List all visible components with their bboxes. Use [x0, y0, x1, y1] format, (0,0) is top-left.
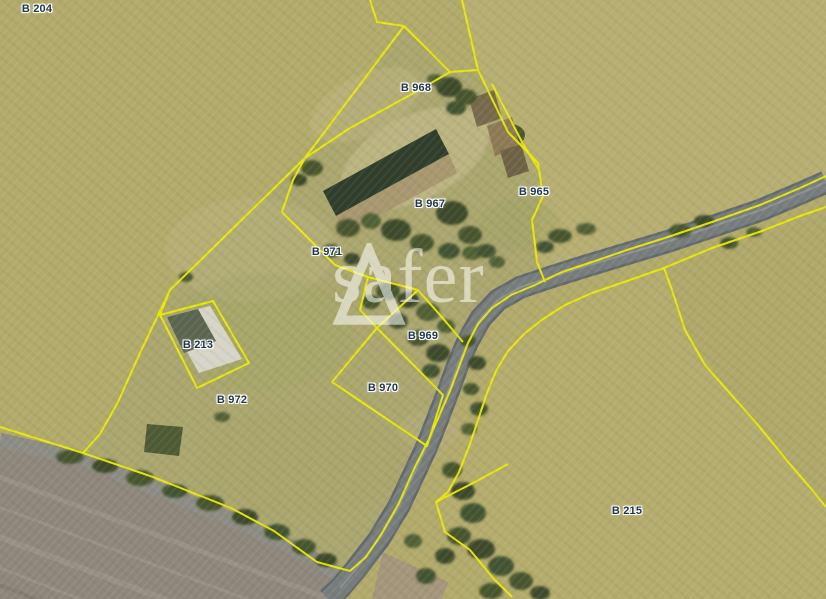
parcel-label-b213[interactable]: B 213: [183, 339, 213, 351]
parcel-label-b967[interactable]: B 967: [415, 198, 445, 210]
small-wood-square: [144, 424, 183, 456]
parcel-label-b965[interactable]: B 965: [519, 186, 549, 198]
parcel-label-b970[interactable]: B 970: [368, 382, 398, 394]
parcel-label-b972[interactable]: B 972: [217, 394, 247, 406]
parcel-label-b969[interactable]: B 969: [408, 330, 438, 342]
parcel-label-b971[interactable]: B 971: [312, 246, 342, 258]
parcel-label-b968[interactable]: B 968: [401, 82, 431, 94]
map-viewport[interactable]: safer B 204 B 968 B 965 B 967 B 971 B 96…: [0, 0, 826, 599]
parcel-label-b215[interactable]: B 215: [612, 505, 642, 517]
parcel-label-b204[interactable]: B 204: [22, 3, 52, 15]
